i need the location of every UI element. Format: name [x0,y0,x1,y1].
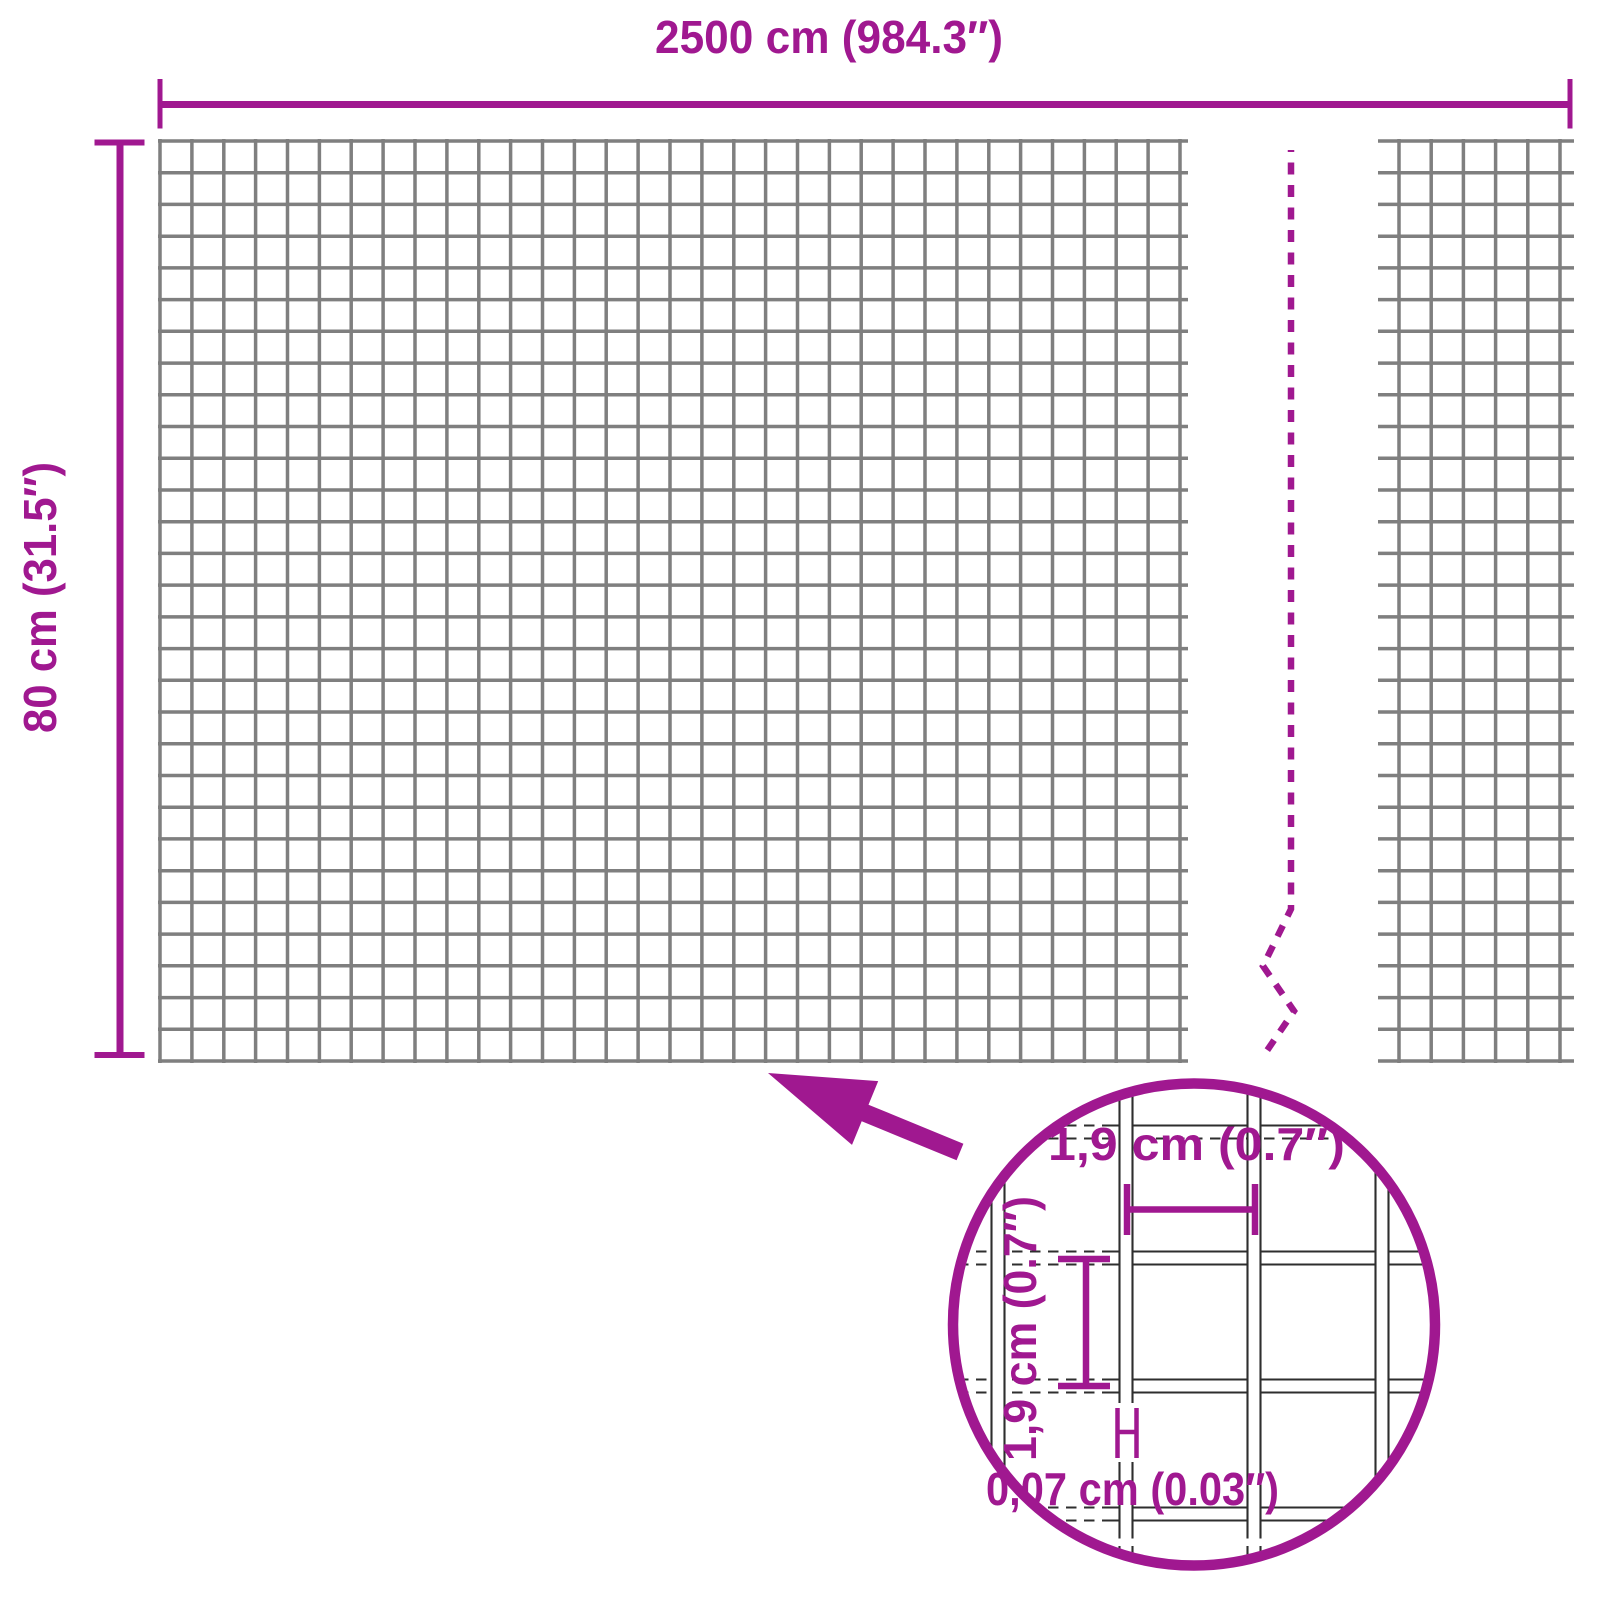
svg-text:80 cm (31.5″): 80 cm (31.5″) [14,462,66,733]
svg-text:1,9 cm (0.7″): 1,9 cm (0.7″) [994,1196,1046,1461]
svg-text:0,07 cm (0.03″): 0,07 cm (0.03″) [986,1463,1279,1515]
svg-text:1,9 cm (0.7″): 1,9 cm (0.7″) [1048,1118,1345,1170]
svg-text:2500 cm (984.3″): 2500 cm (984.3″) [655,11,1003,63]
